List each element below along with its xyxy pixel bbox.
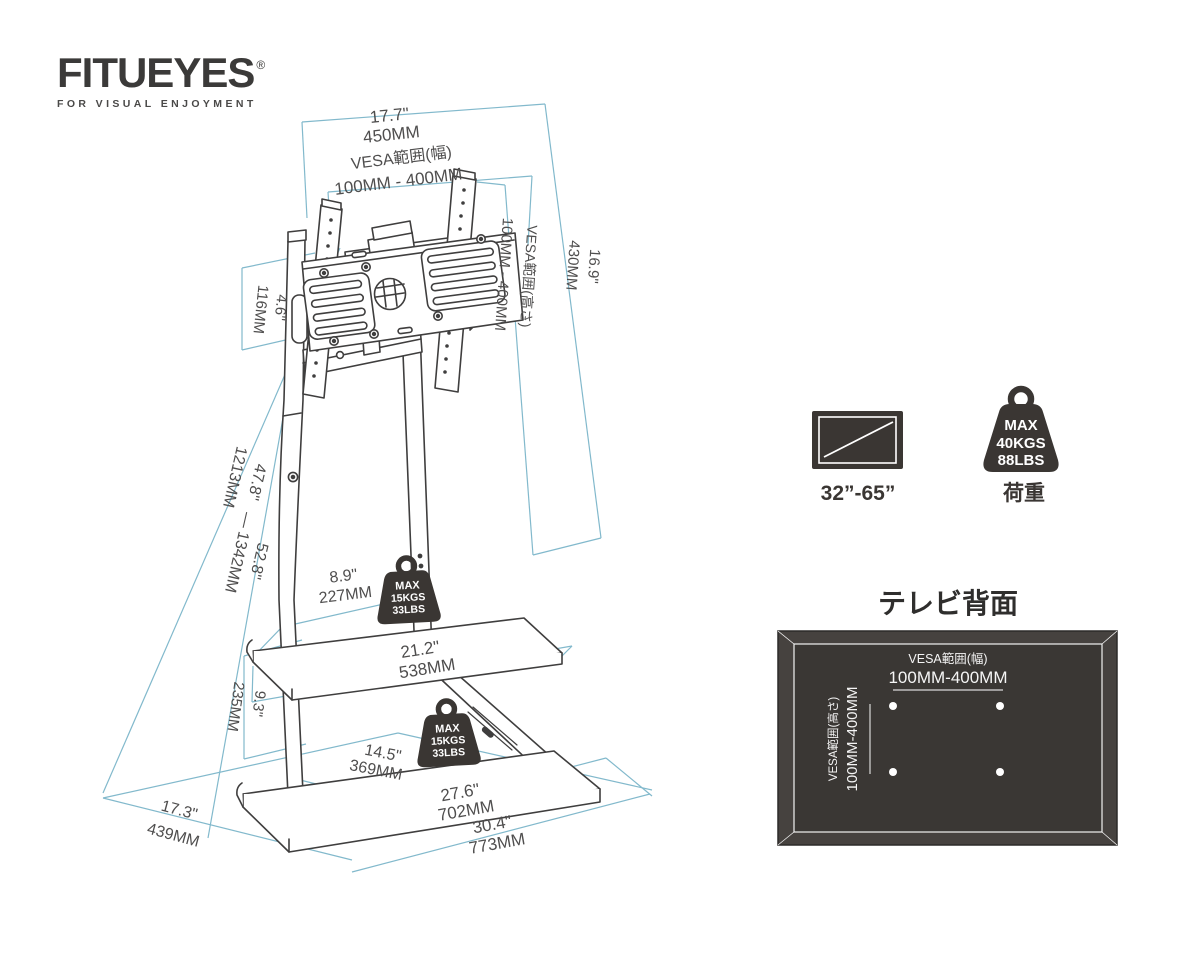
dim-height-max-in: 52.8" xyxy=(246,541,271,581)
diagram-canvas: MAX 15KGS 33LBS MAX 15KGS 33LBS 17.7" 45… xyxy=(0,0,1200,960)
dim-mid-shelf-depth-mm: 227MM xyxy=(318,584,373,607)
load-lbs-label: 88LBS xyxy=(998,452,1045,469)
tv-back-title: テレビ背面 xyxy=(878,588,1018,619)
vesa-height-label: VESA範囲(高さ) xyxy=(517,225,540,329)
panel-vesa-height-range: 100MM-400MM xyxy=(844,686,861,791)
dim-shelf-gap-in: 9.3" xyxy=(248,689,268,717)
panel-vesa-width-range: 100MM-400MM xyxy=(888,668,1007,687)
dim-offset-mm: 116MM xyxy=(249,284,271,334)
shelf2-lbs-label: 33LBS xyxy=(432,746,465,760)
panel-vesa-width-label: VESA範囲(幅) xyxy=(908,651,987,666)
screen-size-label: 32”-65” xyxy=(821,482,896,505)
panel-vesa-height-label: VESA範囲(高さ) xyxy=(826,697,840,782)
dim-height-separator: — xyxy=(235,510,255,529)
dim-bracket-height-in: 16.9" xyxy=(584,248,603,284)
weight-icon-shelf-1: MAX 15KGS 33LBS xyxy=(374,556,441,624)
weight-icon-shelf-2: MAX 15KGS 33LBS xyxy=(414,699,481,767)
dim-height-min-mm: 1213MM xyxy=(219,445,250,509)
dim-offset-in: 4.6" xyxy=(271,294,291,322)
load-label: 荷重 xyxy=(1003,481,1045,505)
tv-screen-icon xyxy=(812,411,903,469)
dim-height-max-mm: 1342MM xyxy=(221,530,252,594)
dim-base-depth-mm: 439MM xyxy=(145,821,201,851)
dim-mid-shelf-depth-in: 8.9" xyxy=(329,566,359,586)
shelf1-lbs-label: 33LBS xyxy=(392,603,425,617)
dim-base-depth-in: 17.3" xyxy=(159,798,199,824)
product-dimension-sheet: FITUEYES® FOR VISUAL ENJOYMENT xyxy=(0,0,1200,960)
load-max-label: MAX xyxy=(1004,417,1037,434)
tv-back-panel: VESA範囲(幅) 100MM-400MM VESA範囲(高さ) 100MM-4… xyxy=(778,631,1117,845)
dim-height-min-in: 47.8" xyxy=(244,462,269,502)
tv-stand-drawing xyxy=(237,169,600,852)
load-kgs-label: 40KGS xyxy=(996,435,1045,452)
dim-bracket-height-mm: 430MM xyxy=(562,240,582,291)
weight-icon-load: MAX 40KGS 88LBS xyxy=(983,389,1058,472)
